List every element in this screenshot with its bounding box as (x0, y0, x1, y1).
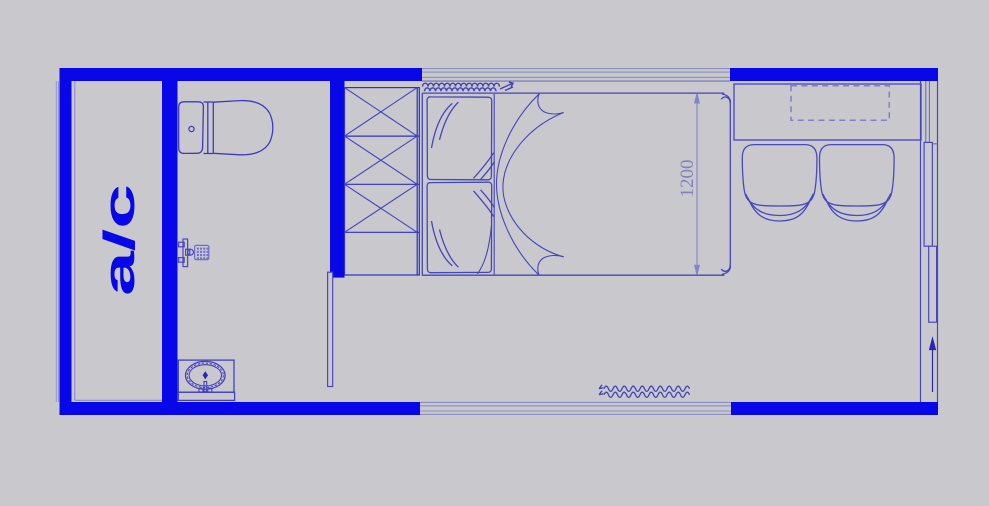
svg-text:a/c: a/c (95, 184, 144, 296)
svg-text:1200: 1200 (677, 160, 698, 198)
